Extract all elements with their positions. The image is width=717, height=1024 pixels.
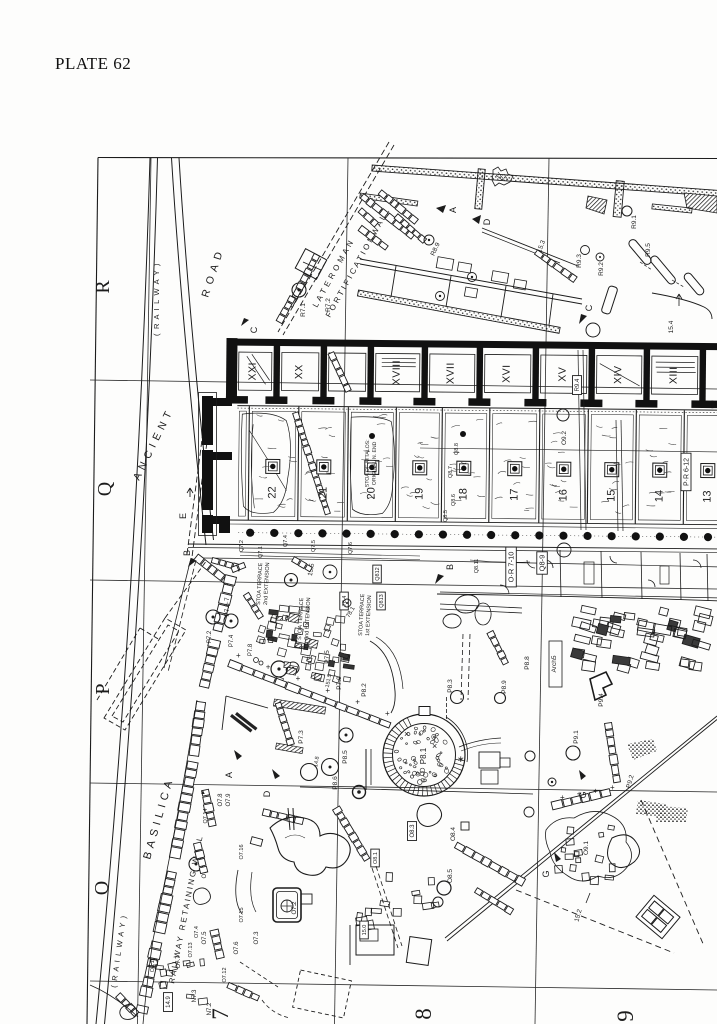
svg-text:Q7.2: Q7.2 bbox=[239, 540, 245, 552]
svg-text:O7.8: O7.8 bbox=[218, 793, 224, 807]
svg-text:XX: XX bbox=[293, 364, 305, 379]
svg-text:P·R 6-12: P·R 6-12 bbox=[684, 458, 691, 486]
svg-text:P7.8: P7.8 bbox=[248, 643, 254, 656]
svg-text:18: 18 bbox=[457, 488, 469, 500]
svg-text:XVII: XVII bbox=[445, 362, 457, 384]
svg-text:O7.13: O7.13 bbox=[188, 943, 194, 958]
svg-text:XIII: XIII bbox=[668, 366, 680, 384]
svg-text:O8.1: O8.1 bbox=[373, 852, 379, 864]
svg-text:13: 13 bbox=[701, 490, 713, 502]
svg-text:Q8-9: Q8-9 bbox=[538, 555, 547, 572]
svg-text:O8.4: O8.4 bbox=[450, 827, 457, 841]
svg-text:A: A bbox=[448, 207, 458, 213]
svg-text:×: × bbox=[432, 741, 437, 751]
svg-text:Q8.8: Q8.8 bbox=[454, 443, 460, 455]
svg-text:O8.5: O8.5 bbox=[447, 869, 454, 883]
svg-text:+: + bbox=[385, 709, 390, 718]
svg-text:Q812: Q812 bbox=[375, 567, 381, 580]
svg-text:O7.16: O7.16 bbox=[239, 845, 245, 860]
svg-text:P7.4: P7.4 bbox=[229, 634, 235, 647]
svg-text:Q7.6: Q7.6 bbox=[348, 542, 354, 554]
svg-text:C: C bbox=[249, 326, 259, 333]
svg-text:22: 22 bbox=[266, 486, 278, 498]
svg-text:D: D bbox=[482, 218, 492, 225]
svg-text:P: P bbox=[92, 683, 114, 694]
svg-text:O9.1: O9.1 bbox=[583, 841, 590, 855]
svg-text:Q8.11: Q8.11 bbox=[474, 559, 480, 574]
svg-text:P9.4: P9.4 bbox=[598, 693, 605, 707]
svg-text:G: G bbox=[541, 870, 551, 877]
svg-text:▲: ▲ bbox=[200, 790, 206, 796]
svg-text:+: + bbox=[296, 674, 301, 683]
svg-text:O7.3: O7.3 bbox=[254, 931, 260, 945]
svg-text:15.0: 15.0 bbox=[362, 925, 368, 936]
svg-text:P9.1: P9.1 bbox=[573, 730, 580, 744]
svg-text:R7.1: R7.1 bbox=[300, 303, 307, 317]
svg-text:E: E bbox=[178, 513, 188, 519]
svg-text:+: + bbox=[593, 786, 598, 795]
svg-text:N7.3: N7.3 bbox=[192, 989, 198, 1002]
svg-text:O: O bbox=[91, 881, 113, 895]
svg-text:D: D bbox=[262, 790, 272, 797]
svg-text:R7.2: R7.2 bbox=[325, 298, 332, 312]
svg-text:XVIII: XVIII bbox=[391, 360, 403, 385]
svg-text:19: 19 bbox=[413, 488, 425, 500]
svg-text:Q8.7: Q8.7 bbox=[448, 466, 454, 478]
svg-text:9: 9 bbox=[613, 1010, 638, 1022]
svg-text:Q: Q bbox=[94, 481, 116, 496]
svg-text:Arch5: Arch5 bbox=[551, 655, 558, 672]
svg-text:B: B bbox=[182, 550, 192, 556]
svg-text:R9.5: R9.5 bbox=[645, 243, 652, 257]
svg-text:P8.9: P8.9 bbox=[501, 680, 508, 694]
svg-text:P8.5: P8.5 bbox=[342, 750, 349, 764]
svg-text:G: G bbox=[578, 791, 588, 798]
svg-text:O7.2: O7.2 bbox=[292, 901, 298, 915]
svg-text:B: B bbox=[445, 564, 455, 570]
svg-text:XV: XV bbox=[557, 367, 569, 382]
svg-text:15.4: 15.4 bbox=[668, 320, 675, 333]
svg-text:14.9: 14.9 bbox=[166, 996, 172, 1008]
svg-text:O7.5: O7.5 bbox=[202, 931, 208, 945]
svg-text:P7.3: P7.3 bbox=[298, 730, 305, 744]
svg-text:∗: ∗ bbox=[457, 754, 465, 764]
svg-text:A: A bbox=[224, 772, 234, 778]
svg-text:P8.2: P8.2 bbox=[361, 683, 368, 697]
svg-text:+: + bbox=[236, 651, 241, 660]
svg-text:XVI: XVI bbox=[501, 364, 513, 383]
svg-text:P7.2: P7.2 bbox=[207, 630, 213, 643]
svg-text:P8.8: P8.8 bbox=[524, 656, 531, 670]
svg-text:R9.3: R9.3 bbox=[576, 254, 583, 268]
svg-text:O7.9: O7.9 bbox=[226, 793, 232, 807]
svg-text:Q813: Q813 bbox=[379, 594, 385, 607]
svg-text:+: + bbox=[355, 697, 360, 706]
svg-text:ORIGINAL N. END: ORIGINAL N. END bbox=[372, 441, 378, 485]
svg-text:15: 15 bbox=[605, 489, 617, 501]
svg-text:XIV: XIV bbox=[612, 365, 624, 384]
svg-text:Q7.4: Q7.4 bbox=[283, 535, 289, 547]
svg-text:PLATE 62: PLATE 62 bbox=[55, 54, 131, 73]
svg-text:P8.3: P8.3 bbox=[447, 679, 454, 693]
svg-text:+: + bbox=[560, 793, 565, 802]
svg-text:O9.2: O9.2 bbox=[561, 431, 568, 445]
svg-text:P8.1: P8.1 bbox=[419, 747, 428, 764]
svg-text:8: 8 bbox=[411, 1008, 436, 1020]
svg-text:R: R bbox=[92, 280, 114, 294]
svg-text:Q8.5: Q8.5 bbox=[443, 510, 449, 522]
svg-text:14: 14 bbox=[653, 490, 665, 502]
svg-text:STOA OF ATTALOS:: STOA OF ATTALOS: bbox=[365, 439, 371, 487]
svg-text:( R A I L W A Y ): ( R A I L W A Y ) bbox=[152, 262, 161, 336]
svg-text:Q7.5: Q7.5 bbox=[311, 540, 317, 552]
svg-text:O·R 7-10: O·R 7-10 bbox=[507, 552, 516, 583]
svg-text:Q8.6: Q8.6 bbox=[451, 494, 457, 506]
svg-text:78.4: 78.4 bbox=[342, 596, 348, 607]
svg-text:O7.14: O7.14 bbox=[203, 809, 209, 824]
svg-text:R9.1: R9.1 bbox=[631, 215, 638, 229]
svg-text:R9.4: R9.4 bbox=[575, 378, 581, 391]
svg-text:×: × bbox=[404, 729, 409, 739]
svg-text:C: C bbox=[584, 304, 594, 311]
svg-text:O7.12: O7.12 bbox=[222, 968, 228, 983]
svg-text:21: 21 bbox=[317, 487, 329, 499]
svg-text:17: 17 bbox=[508, 489, 520, 501]
svg-text:R9.2: R9.2 bbox=[598, 262, 605, 276]
svg-text:16: 16 bbox=[557, 489, 569, 501]
svg-text:O7.4: O7.4 bbox=[194, 926, 200, 938]
svg-text:O7.6: O7.6 bbox=[234, 941, 240, 955]
svg-text:+: + bbox=[610, 783, 615, 792]
svg-text:+: + bbox=[325, 686, 330, 695]
svg-text:O8.3: O8.3 bbox=[410, 824, 416, 838]
svg-text:+: + bbox=[266, 663, 271, 672]
